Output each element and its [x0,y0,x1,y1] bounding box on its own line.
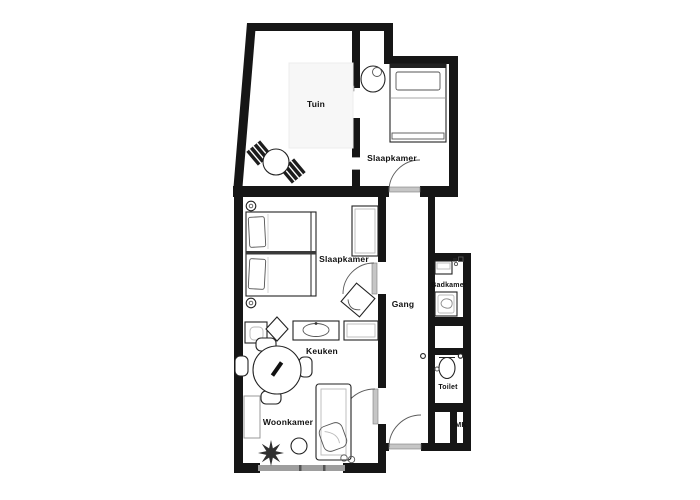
door-leaf [389,187,420,192]
door-leaf [372,263,377,294]
door-slaapkamer-top [389,160,420,192]
radiator [244,396,260,438]
room-label-mk: MK [455,420,467,429]
room-label-keuken: Keuken [306,346,338,356]
double-bed [246,212,316,296]
door-swing-arc [389,415,421,447]
room-tuin [246,63,353,184]
sofa [316,384,351,460]
room-label-badkamer: Badkamer [431,282,467,289]
room-slaapkamer-top [361,64,446,142]
wardrobe [352,206,378,256]
wall-mid-band-left [233,186,389,197]
washbasin-icon [361,66,385,92]
wall-gang-left-b [378,294,386,388]
wall-swirl-icon [246,201,256,211]
diamond-fixture-icon [266,317,288,341]
floorplan-drawing: Tuin Slaapkamer Slaapkamer Gang Badkamer… [0,0,700,500]
room-toilet [435,358,455,379]
garden-table [263,149,289,175]
toilet-icon [435,358,455,379]
door-swing-arc [389,160,420,191]
bathroom-sink-icon [435,261,452,274]
shower-icon [435,292,457,316]
room-label-slaapkamer-top: Slaapkamer [367,153,417,163]
room-label-tuin: Tuin [307,99,325,109]
chair [341,283,375,317]
window-tick-1 [299,465,302,471]
room-label-toilet: Toilet [438,384,458,391]
wall-top [247,23,393,31]
door-leaf [389,444,421,449]
wall-badkamer-bottom [428,317,471,326]
wall-right-upper [449,56,458,193]
wall-bottom-left [234,463,260,473]
room-keuken [235,317,378,404]
wall-left-lower [234,193,243,473]
kitchen-counter [344,321,378,340]
room-label-gang: Gang [392,299,415,309]
wall-closet-bottom [428,348,471,355]
room-label-slaapkamer-mid: Slaapkamer [319,254,369,264]
kitchen-sink-counter [293,321,339,340]
window-tick-2 [323,465,326,471]
side-table [291,438,307,454]
wall-notch-step [384,56,458,64]
wall-mid-band-right [420,186,458,197]
wall-gang-left-a [378,193,386,262]
room-label-woonkamer: Woonkamer [263,417,314,427]
plant-icon [258,440,284,466]
door-hinge-mark-toilet [421,354,426,359]
door-leaf [373,389,378,424]
wall-gang-bottom-left [378,443,389,451]
wall-toilet-bottom [428,403,471,412]
wall-swirl-icon [246,298,256,308]
single-bed [390,64,446,142]
door-hinge-mark-toilet-inner [458,354,462,358]
door-front-entrance [389,415,421,449]
floorplan-canvas: Tuin Slaapkamer Slaapkamer Gang Badkamer… [0,0,700,500]
wall-left-slanted [233,23,256,193]
